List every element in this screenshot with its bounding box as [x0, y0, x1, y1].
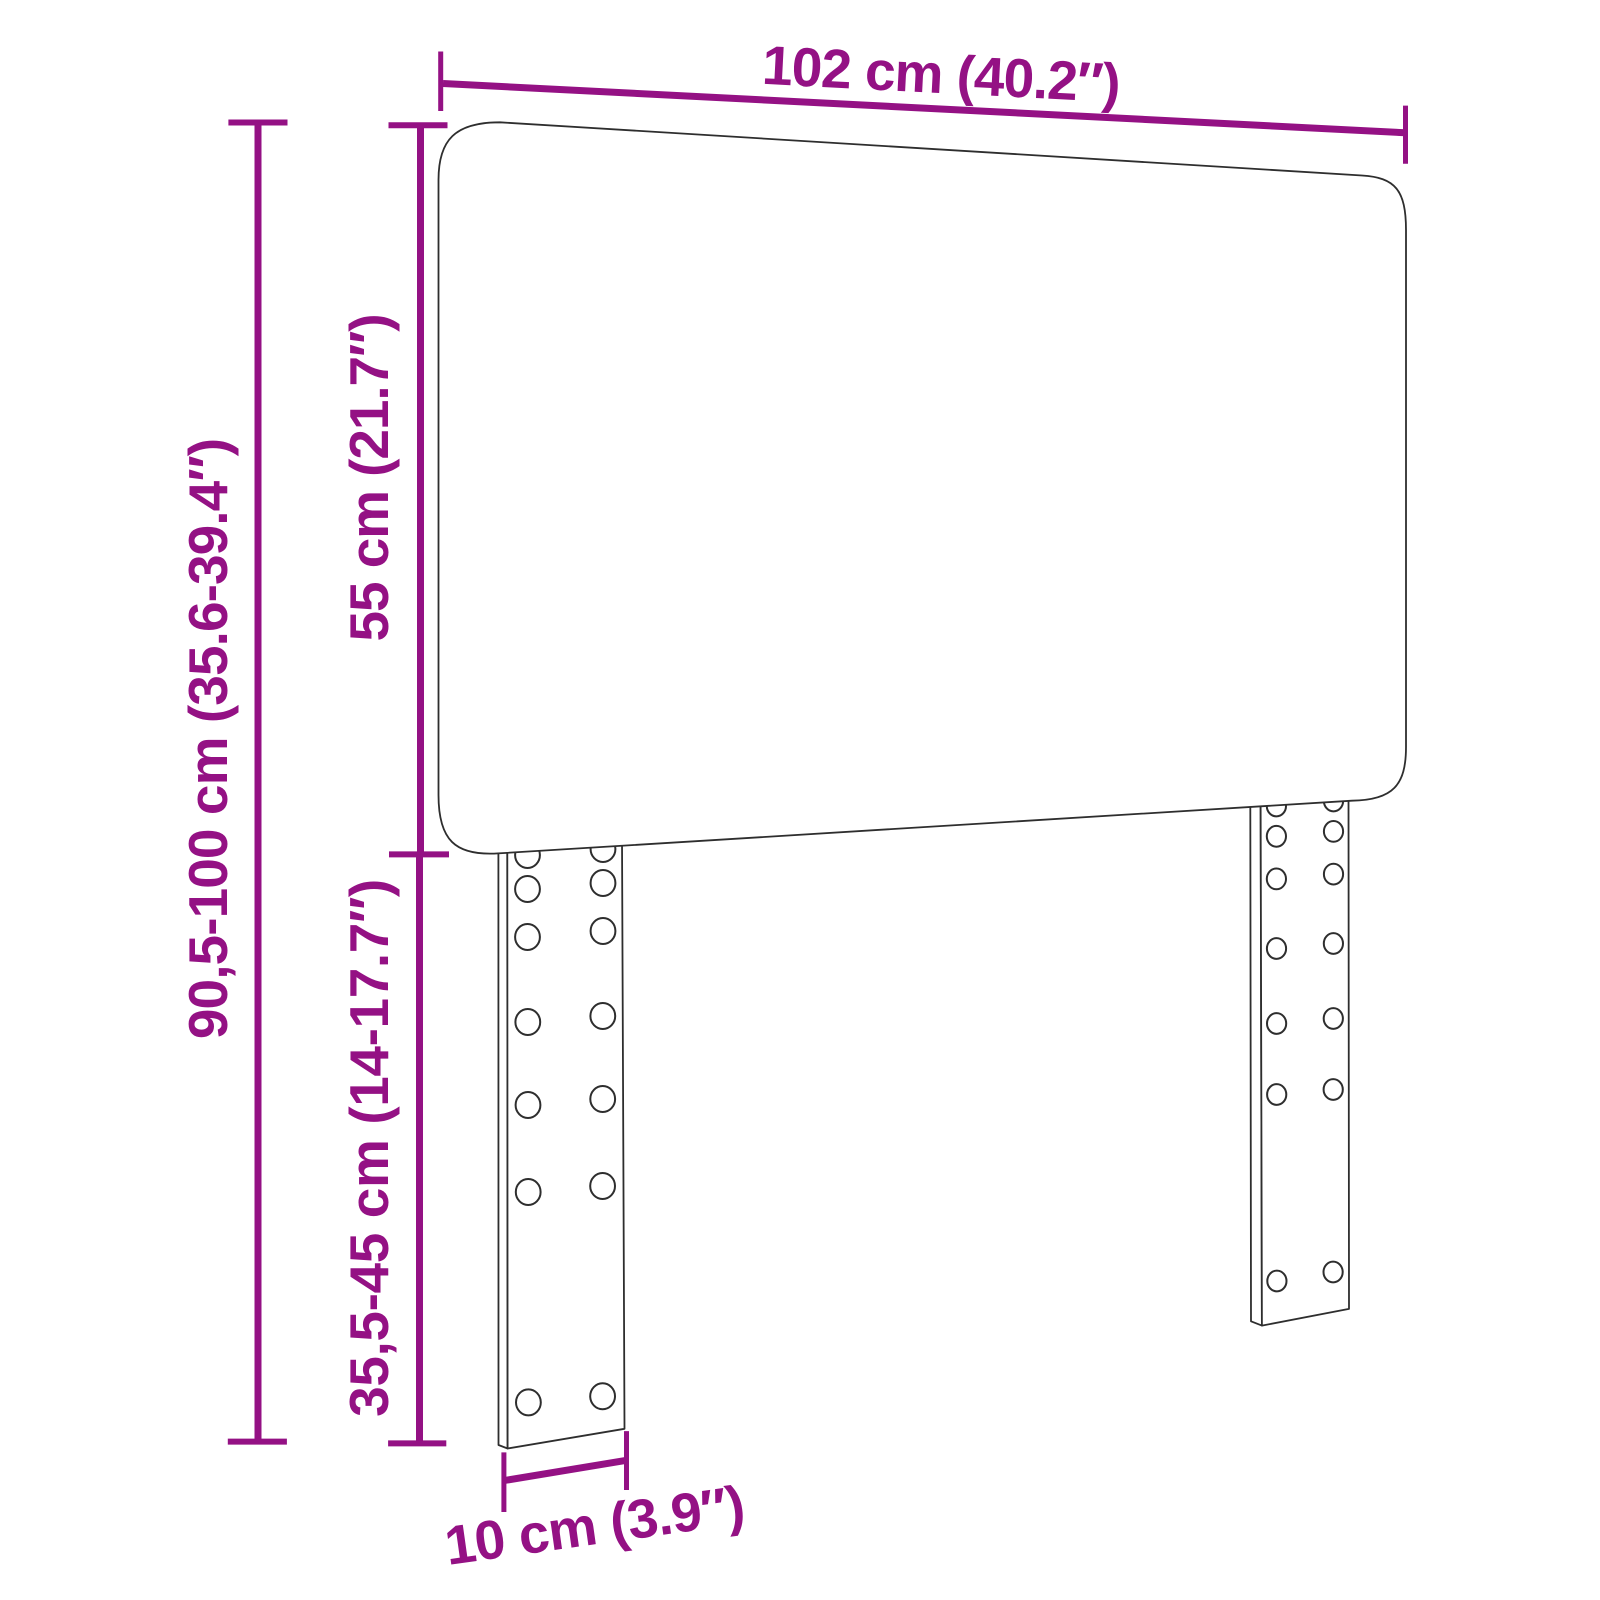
svg-text:90,5-100 cm (35.6-39.4″): 90,5-100 cm (35.6-39.4″) [177, 439, 239, 1039]
svg-text:55 cm (21.7″): 55 cm (21.7″) [338, 315, 400, 642]
svg-text:35,5-45 cm (14-17.7″): 35,5-45 cm (14-17.7″) [338, 879, 400, 1417]
